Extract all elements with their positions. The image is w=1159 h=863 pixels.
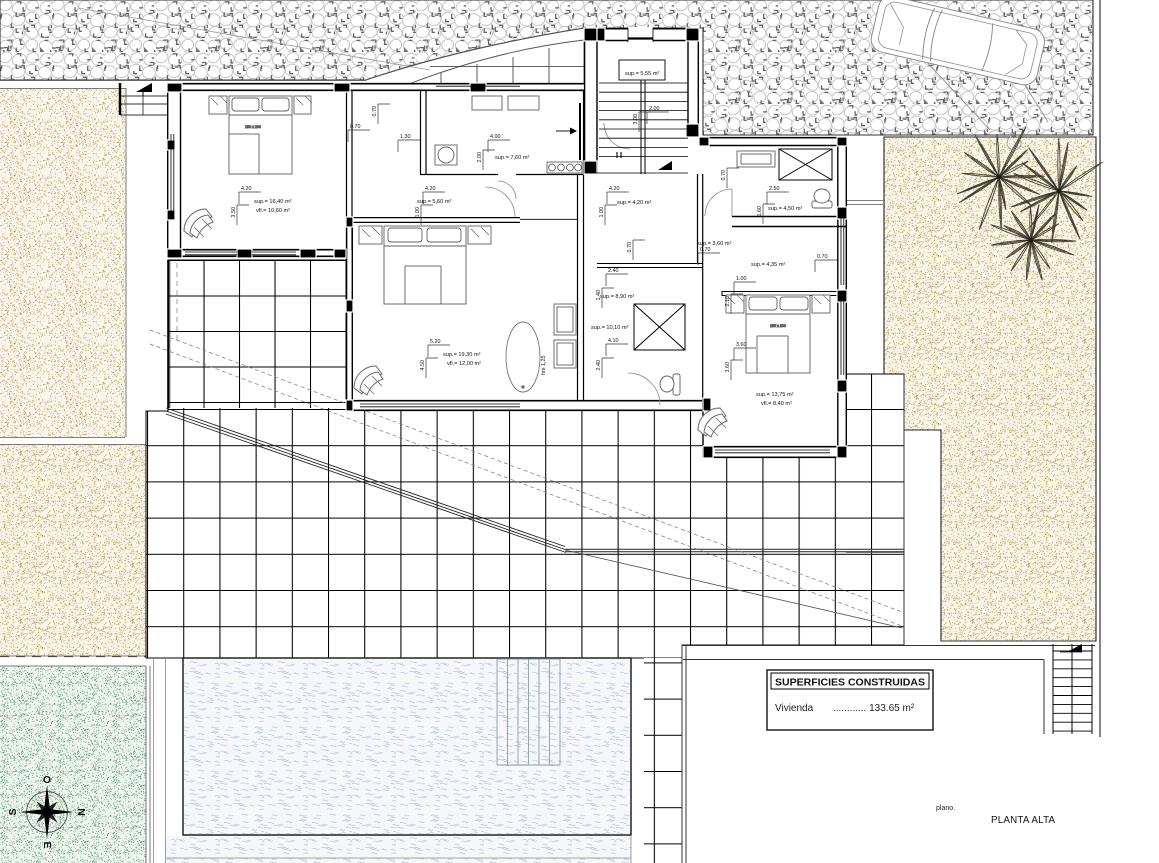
svg-text:vfl.= 10,60 m²: vfl.= 10,60 m²: [256, 208, 290, 214]
svg-text:4.50: 4.50: [420, 360, 426, 371]
svg-text:Vivienda: Vivienda: [775, 703, 814, 714]
svg-text:5.20: 5.20: [430, 339, 441, 345]
svg-text:1.30: 1.30: [400, 134, 411, 140]
svg-text:0.70: 0.70: [372, 106, 378, 117]
svg-text:sup.= 5,55 m²: sup.= 5,55 m²: [625, 71, 659, 77]
svg-text:0.70: 0.70: [817, 254, 828, 260]
svg-text:plano.: plano.: [936, 805, 955, 812]
svg-text:sup.= 10,10 m²: sup.= 10,10 m²: [591, 325, 629, 331]
svg-text:2.40: 2.40: [596, 360, 602, 371]
svg-text:4.10: 4.10: [608, 338, 619, 344]
svg-text:2.40: 2.40: [608, 268, 619, 274]
svg-text:2.00: 2.00: [649, 106, 660, 112]
svg-text:4.20: 4.20: [609, 186, 620, 192]
svg-text:hm 1,25: hm 1,25: [541, 356, 547, 375]
svg-text:............ 133.65 m²: ............ 133.65 m²: [833, 703, 915, 714]
svg-text:4.20: 4.20: [425, 186, 436, 192]
svg-text:2.50: 2.50: [769, 186, 780, 192]
svg-text:3.60: 3.60: [725, 362, 731, 373]
svg-text:1.00: 1.00: [415, 207, 421, 218]
svg-text:sup.= 4,20 m²: sup.= 4,20 m²: [617, 200, 651, 206]
svg-text:1.40: 1.40: [596, 290, 602, 301]
svg-text:sup.= 13,75 m²: sup.= 13,75 m²: [756, 392, 794, 398]
svg-text:E: E: [41, 841, 53, 848]
svg-text:1.00: 1.00: [599, 207, 605, 218]
svg-text:0.70: 0.70: [700, 247, 711, 253]
svg-text:3.00: 3.00: [633, 114, 639, 125]
svg-text:1.60: 1.60: [757, 206, 763, 217]
svg-text:4.00: 4.00: [490, 134, 501, 140]
svg-text:sup.= 5,60 m²: sup.= 5,60 m²: [417, 199, 451, 205]
svg-text:SUPERFICIES CONSTRUIDAS: SUPERFICIES CONSTRUIDAS: [775, 677, 925, 689]
svg-text:3.50: 3.50: [231, 207, 237, 218]
svg-text:sup.= 8,90 m²: sup.= 8,90 m²: [600, 294, 634, 300]
svg-text:150 x 200: 150 x 200: [245, 125, 261, 129]
svg-text:vfl.= 12,00 m²: vfl.= 12,00 m²: [447, 361, 481, 367]
svg-text:sup.= 7,60 m²: sup.= 7,60 m²: [495, 155, 529, 161]
svg-text:sup.= 19,30 m²: sup.= 19,30 m²: [443, 352, 481, 358]
svg-text:0.70: 0.70: [350, 124, 361, 130]
svg-text:sup.= 4,50 m²: sup.= 4,50 m²: [768, 206, 802, 212]
svg-text:sup.= 16,40 m²: sup.= 16,40 m²: [254, 199, 292, 205]
svg-text:sup.= 4,35 m²: sup.= 4,35 m²: [751, 262, 785, 268]
svg-text:2.00: 2.00: [477, 152, 483, 163]
svg-text:150 x 200: 150 x 200: [770, 324, 786, 328]
svg-text:4.20: 4.20: [241, 186, 252, 192]
svg-text:3.60: 3.60: [736, 342, 747, 348]
svg-text:1.00: 1.00: [736, 276, 747, 282]
svg-text:N: N: [75, 808, 87, 816]
svg-text:O: O: [43, 774, 51, 786]
svg-text:0.70: 0.70: [721, 170, 727, 181]
svg-text:0.70: 0.70: [627, 242, 633, 253]
svg-text:vfl.= 8,40 m²: vfl.= 8,40 m²: [761, 401, 792, 407]
svg-text:PLANTA ALTA: PLANTA ALTA: [991, 815, 1056, 826]
svg-text:2.10: 2.10: [725, 296, 731, 307]
svg-text:S: S: [7, 808, 19, 815]
